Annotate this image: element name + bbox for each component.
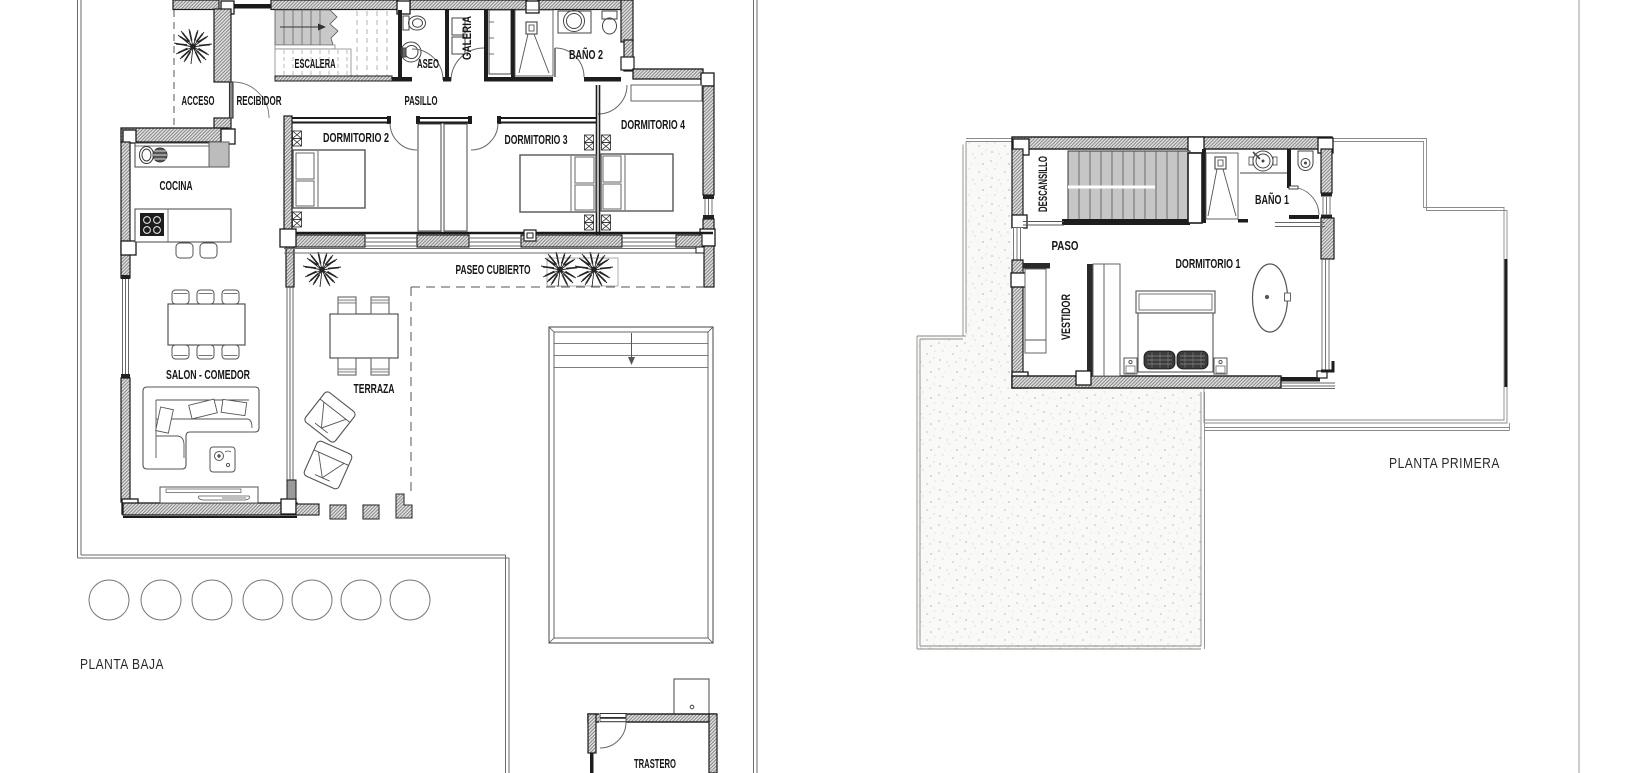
svg-text:DESCANSILLO: DESCANSILLO <box>1038 156 1050 212</box>
svg-text:DORMITORIO 1: DORMITORIO 1 <box>1176 256 1241 271</box>
svg-text:DORMITORIO 4: DORMITORIO 4 <box>621 117 686 132</box>
svg-text:RECIBIDOR: RECIBIDOR <box>237 93 282 108</box>
svg-text:PASEO CUBIERTO: PASEO CUBIERTO <box>456 262 531 277</box>
svg-text:COCINA: COCINA <box>160 178 193 193</box>
svg-text:ACCESO: ACCESO <box>182 93 215 108</box>
svg-text:TRASTERO: TRASTERO <box>634 756 676 771</box>
svg-text:PLANTA PRIMERA: PLANTA PRIMERA <box>1389 456 1500 472</box>
svg-text:SALON - COMEDOR: SALON - COMEDOR <box>166 367 250 382</box>
svg-text:VESTIDOR: VESTIDOR <box>1061 293 1073 340</box>
svg-text:PLANTA BAJA: PLANTA BAJA <box>80 657 164 673</box>
svg-text:TERRAZA: TERRAZA <box>354 381 395 396</box>
svg-text:PASILLO: PASILLO <box>405 93 438 108</box>
svg-text:DORMITORIO 3: DORMITORIO 3 <box>505 132 568 147</box>
svg-text:BAÑO 2: BAÑO 2 <box>569 47 603 62</box>
svg-text:ASEO: ASEO <box>417 56 439 71</box>
svg-text:BAÑO 1: BAÑO 1 <box>1255 192 1289 207</box>
svg-text:GALERIA: GALERIA <box>462 16 474 60</box>
svg-text:DORMITORIO 2: DORMITORIO 2 <box>323 130 389 145</box>
svg-text:PASO: PASO <box>1052 238 1079 253</box>
svg-text:ESCALERA: ESCALERA <box>295 56 336 71</box>
